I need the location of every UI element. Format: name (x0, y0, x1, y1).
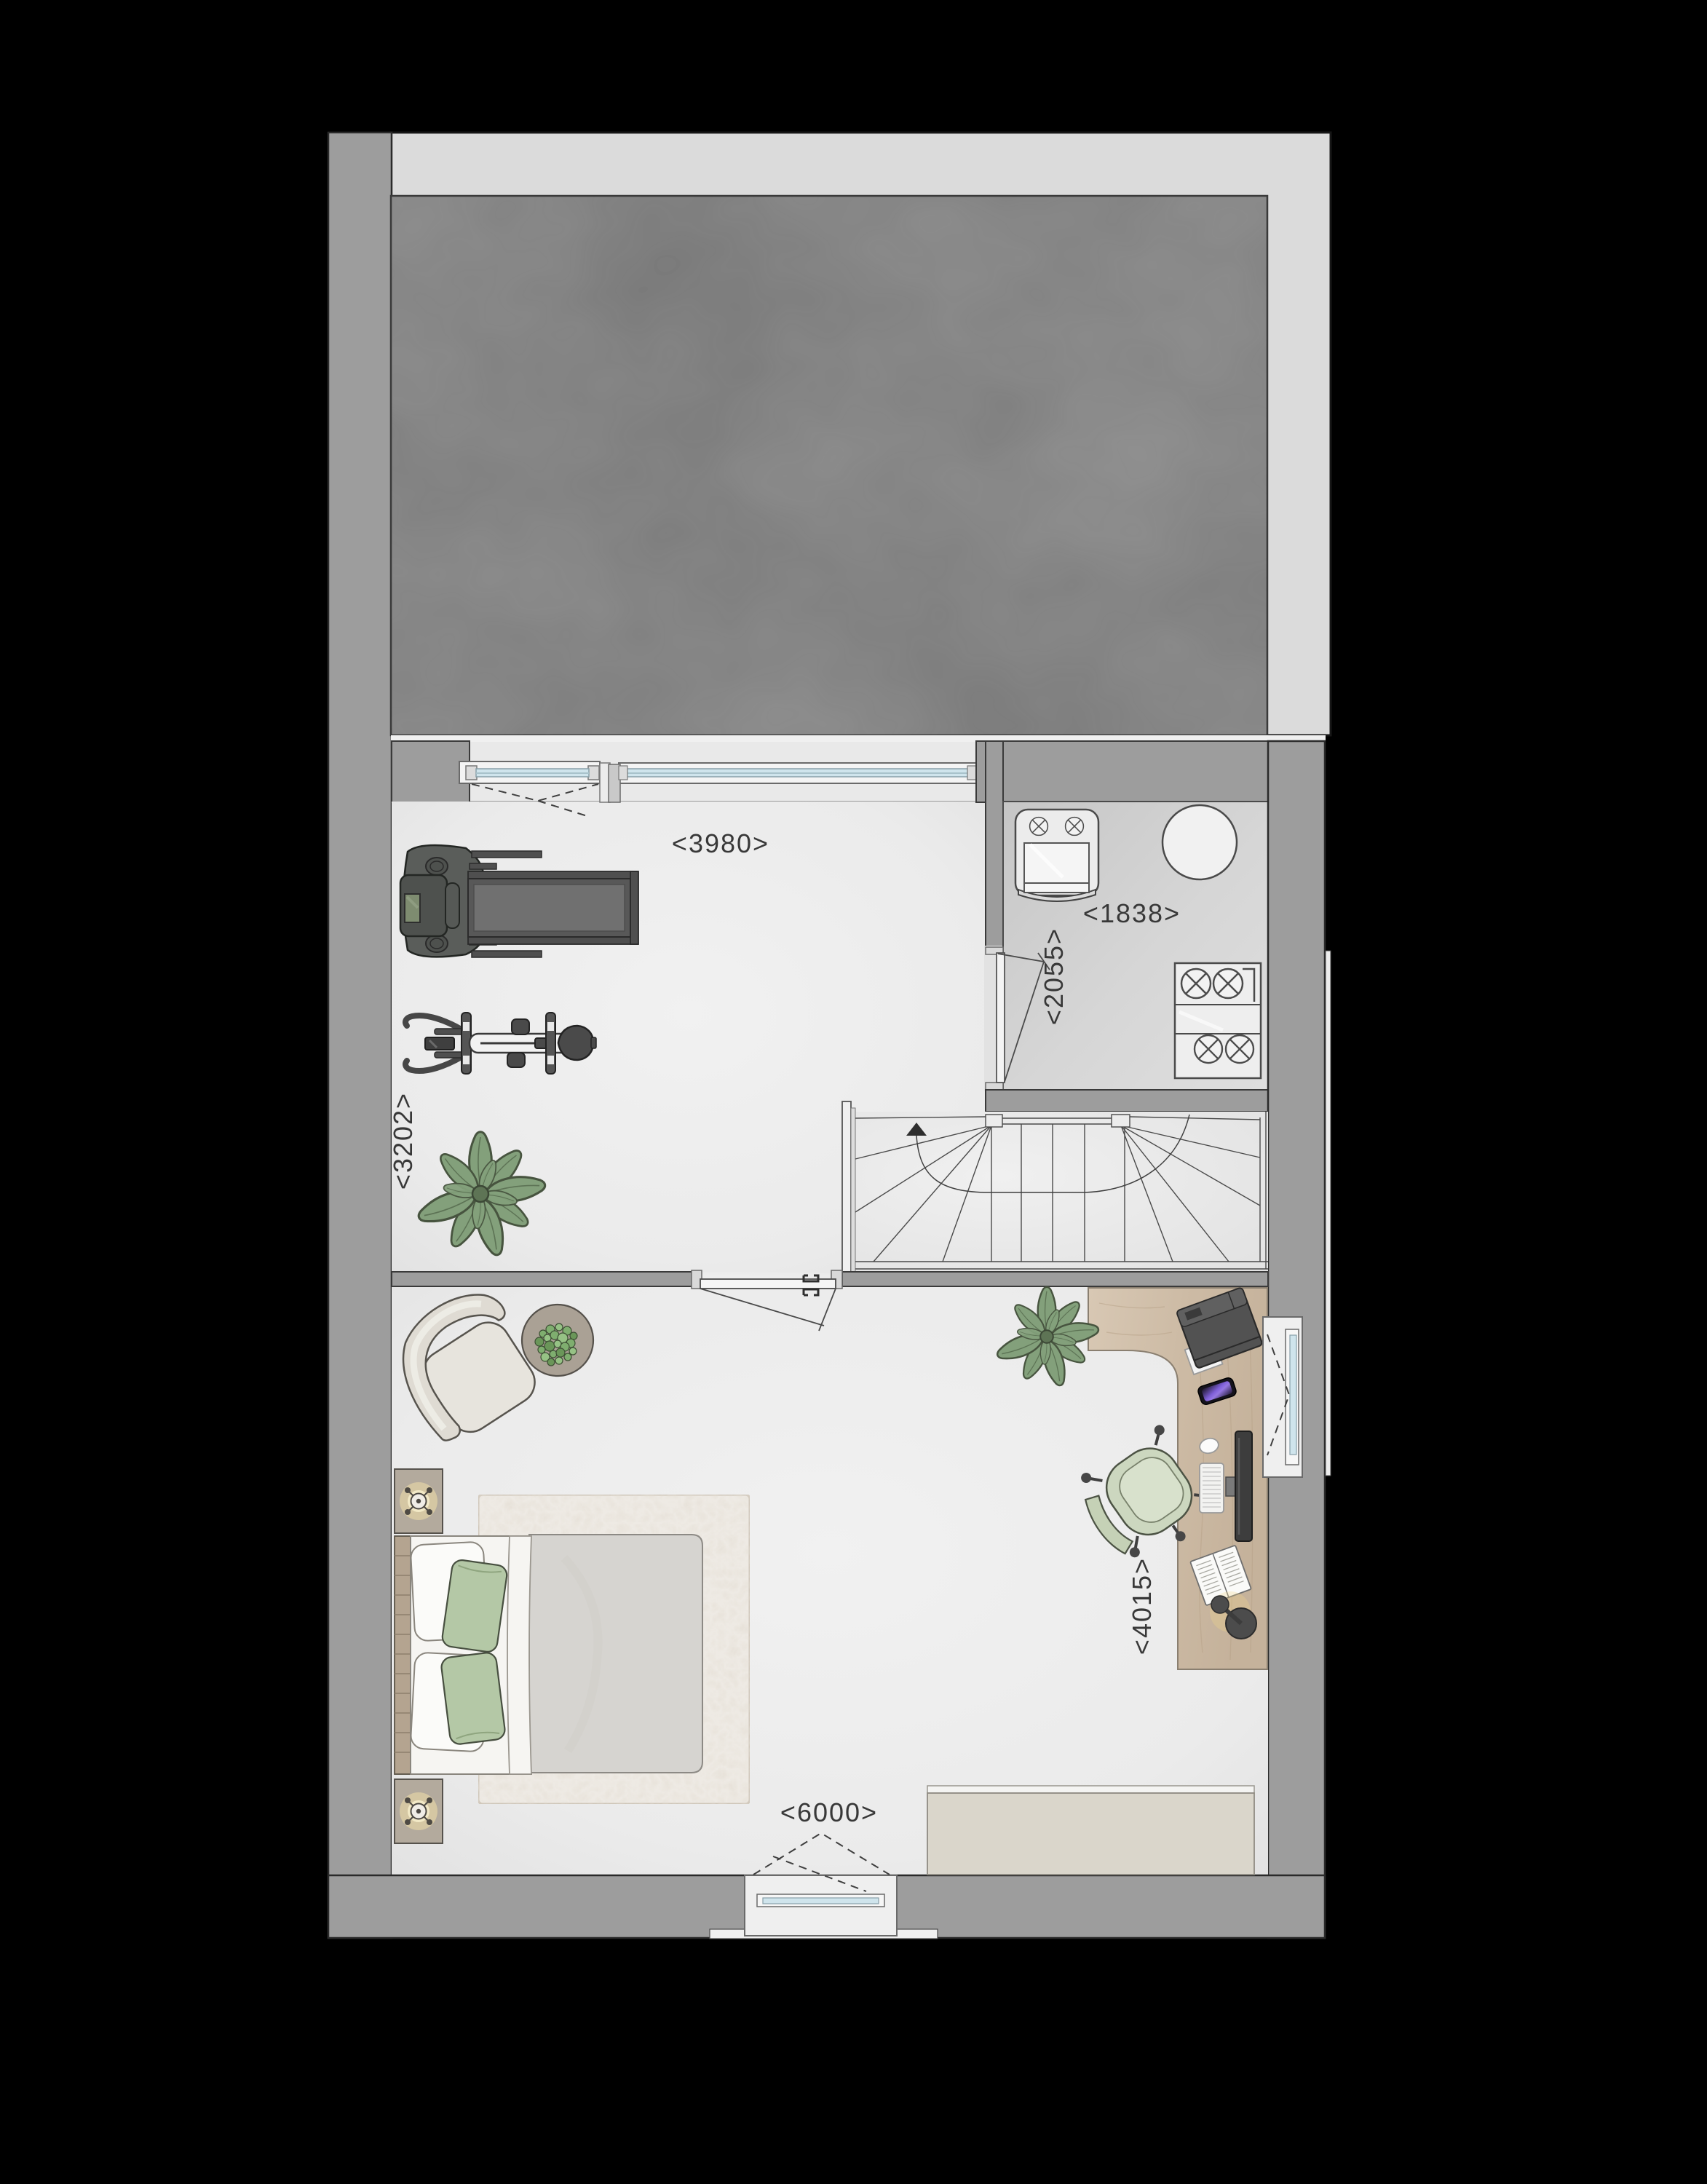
svg-text:<2055>: <2055> (1039, 927, 1069, 1025)
svg-text:<1838>: <1838> (1083, 898, 1181, 928)
svg-text:<3202>: <3202> (388, 1092, 418, 1190)
svg-text:<4015>: <4015> (1127, 1557, 1157, 1655)
svg-text:<3980>: <3980> (672, 828, 769, 858)
svg-text:<6000>: <6000> (780, 1797, 878, 1827)
